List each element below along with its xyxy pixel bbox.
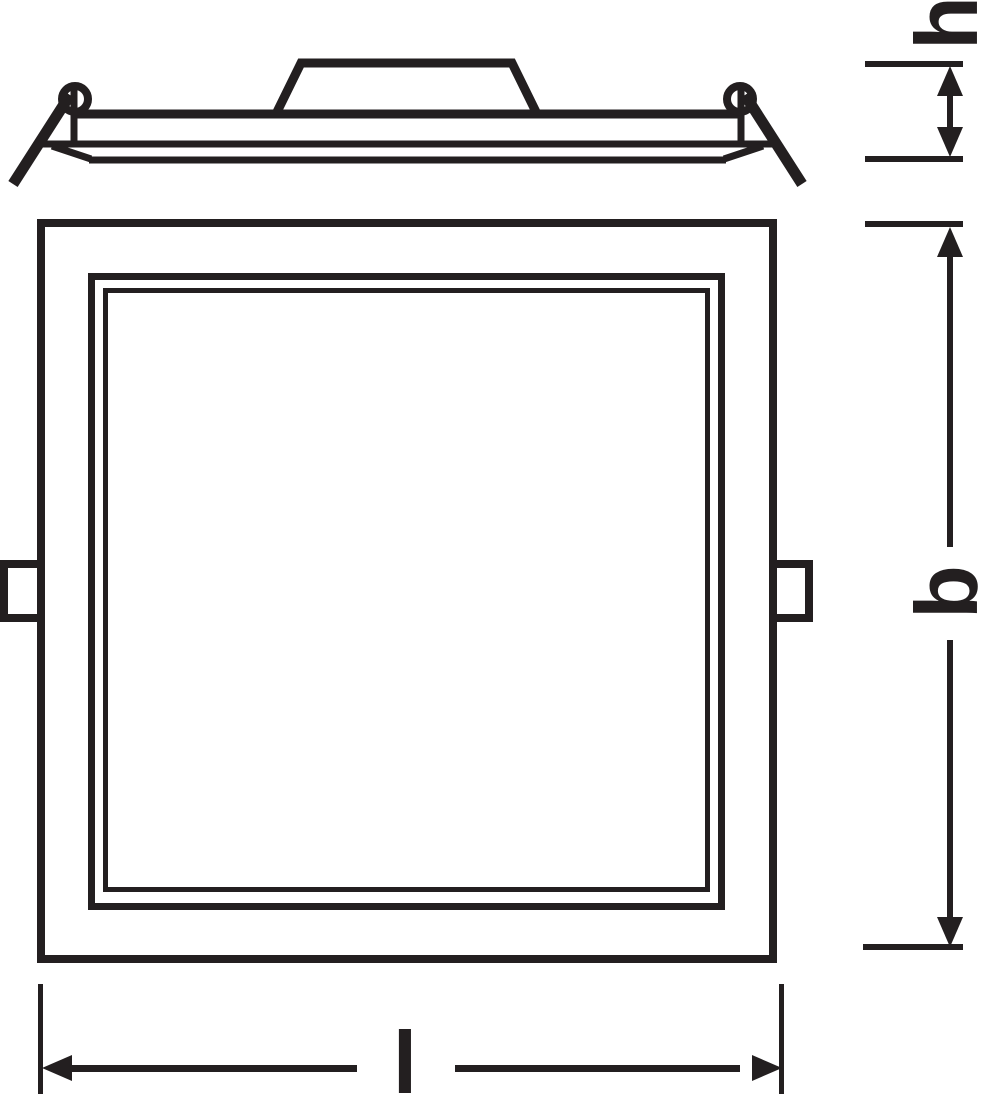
flange-bevel-right bbox=[724, 146, 763, 159]
dim-l-label: l bbox=[393, 1019, 417, 1107]
mounting-tab-right bbox=[777, 560, 813, 622]
dim-h-arrow-down bbox=[937, 127, 963, 157]
mounting-tab-left bbox=[0, 560, 38, 622]
dim-b-line-upper bbox=[947, 252, 953, 547]
dim-b-arrow-down bbox=[937, 917, 963, 947]
front-view-inner-frame bbox=[103, 288, 710, 892]
dim-b-line-lower bbox=[947, 640, 953, 920]
dim-h-line bbox=[947, 92, 953, 132]
driver-box bbox=[275, 63, 538, 116]
dim-l-line-left bbox=[70, 1065, 357, 1072]
side-view bbox=[0, 0, 1000, 215]
dim-h-label: h bbox=[903, 0, 991, 50]
dim-b-label: b bbox=[903, 565, 991, 619]
dim-l-line-right bbox=[455, 1065, 740, 1072]
dim-l-arrow-left bbox=[42, 1055, 72, 1081]
dim-l-arrow-right bbox=[752, 1055, 782, 1081]
flange-bevel-left bbox=[52, 146, 91, 159]
dimension-drawing: h b l bbox=[0, 0, 1000, 1112]
